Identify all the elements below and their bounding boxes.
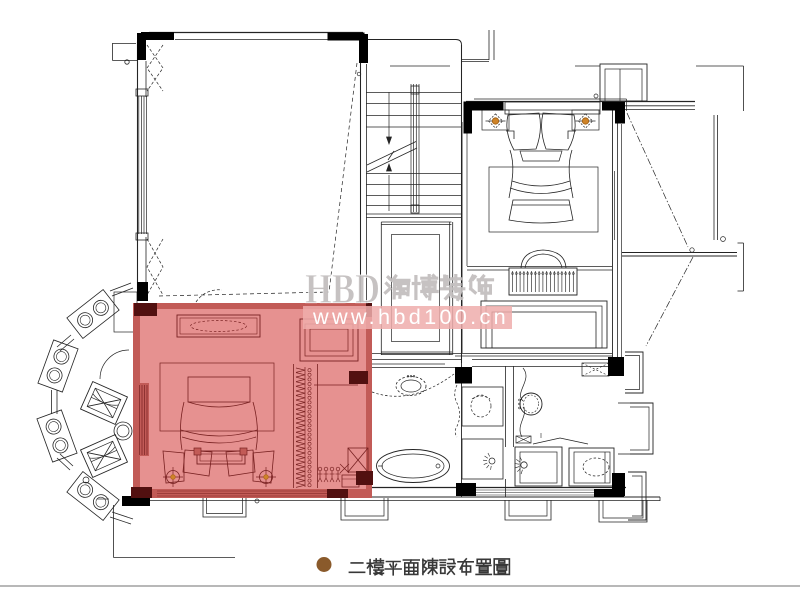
svg-text:HBD: HBD: [305, 267, 380, 313]
